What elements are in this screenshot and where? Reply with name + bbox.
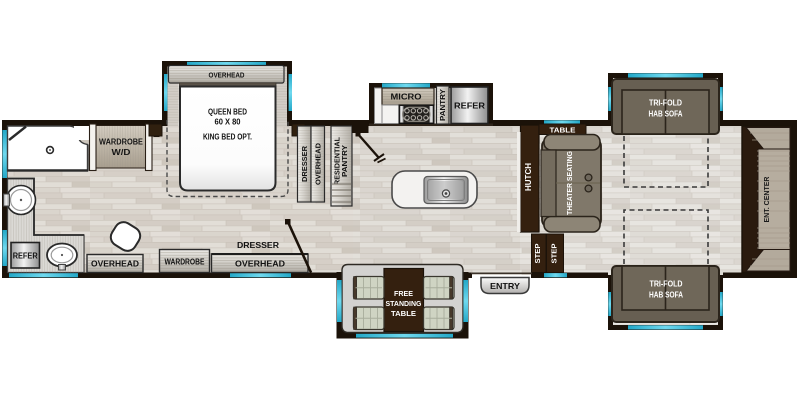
svg-text:QUEEN BED: QUEEN BED: [208, 108, 247, 117]
svg-text:WARDROBE: WARDROBE: [165, 258, 206, 267]
svg-text:TABLE: TABLE: [550, 125, 576, 134]
svg-text:WARDROBE: WARDROBE: [99, 138, 144, 147]
svg-text:STEP: STEP: [552, 243, 559, 263]
svg-text:HAB SOFA: HAB SOFA: [649, 109, 683, 119]
svg-text:REFER: REFER: [454, 101, 485, 111]
svg-text:ENT. CENTER: ENT. CENTER: [762, 176, 771, 223]
svg-text:MICRO: MICRO: [391, 93, 422, 102]
svg-text:OVERHEAD: OVERHEAD: [209, 71, 245, 80]
svg-text:W/D: W/D: [112, 148, 131, 157]
svg-text:60 X 80: 60 X 80: [215, 117, 242, 126]
svg-text:FREE: FREE: [394, 289, 413, 298]
svg-text:OVERHEAD: OVERHEAD: [91, 260, 139, 269]
svg-text:REFER: REFER: [13, 252, 38, 261]
svg-text:PANTRY: PANTRY: [438, 89, 447, 121]
svg-text:OVERHEAD: OVERHEAD: [314, 142, 323, 185]
svg-text:OVERHEAD: OVERHEAD: [235, 259, 285, 268]
svg-text:KING BED OPT.: KING BED OPT.: [203, 133, 252, 142]
svg-text:TRI-FOLD: TRI-FOLD: [650, 279, 683, 289]
svg-text:DRESSER: DRESSER: [237, 241, 279, 250]
svg-text:STEP: STEP: [535, 243, 542, 263]
svg-text:PANTRY: PANTRY: [342, 145, 349, 177]
svg-text:TABLE: TABLE: [391, 309, 416, 318]
svg-text:HAB SOFA: HAB SOFA: [649, 290, 683, 300]
svg-text:HUTCH: HUTCH: [524, 163, 533, 191]
svg-text:THEATER SEATING: THEATER SEATING: [565, 151, 574, 215]
svg-text:RESIDENTIAL: RESIDENTIAL: [335, 136, 342, 185]
svg-text:ENTRY: ENTRY: [490, 281, 520, 291]
svg-text:TRI-FOLD: TRI-FOLD: [649, 98, 682, 108]
svg-text:STANDING: STANDING: [386, 299, 422, 308]
svg-text:DRESSER: DRESSER: [300, 145, 309, 182]
